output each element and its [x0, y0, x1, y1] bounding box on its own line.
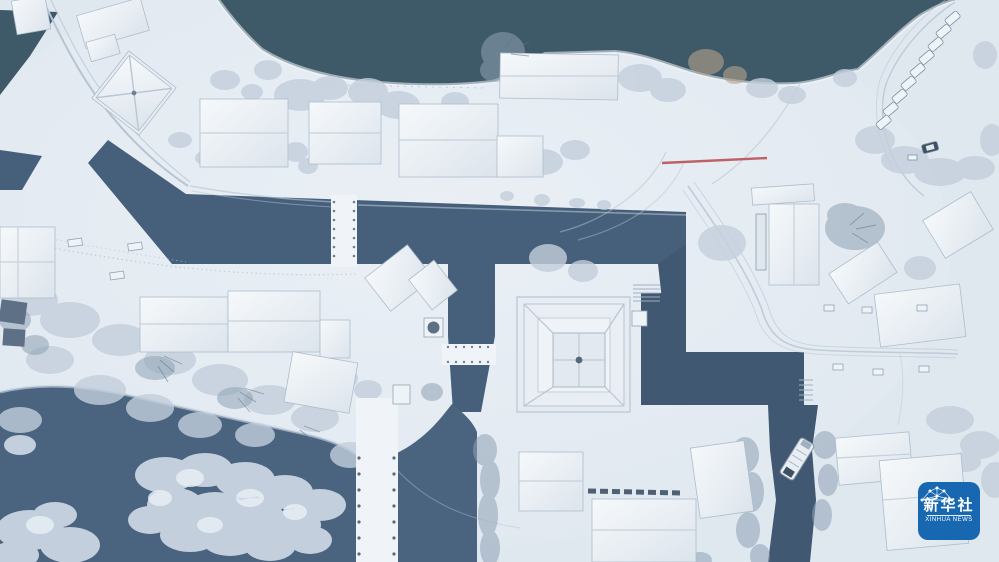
kiosk [393, 385, 410, 404]
bench [862, 307, 872, 313]
bench [917, 305, 927, 311]
bench [128, 242, 143, 251]
east-canal-basin [686, 352, 804, 405]
xinhua-watermark: 新华社 XINHUA NEWS [918, 482, 980, 540]
bench [824, 305, 834, 311]
bench [919, 366, 929, 372]
pagoda-roof [517, 297, 630, 412]
covered-corridor [756, 214, 766, 270]
network-globe-icon [918, 483, 956, 503]
building-roof [497, 136, 543, 177]
cart [908, 155, 917, 160]
south-canal [768, 405, 818, 562]
building-roof [690, 441, 753, 519]
watermark-divider [927, 515, 971, 516]
watermark-en-text: XINHUA NEWS [925, 517, 973, 524]
south-walkway [356, 398, 398, 562]
building-roof [320, 320, 350, 358]
kiosk [632, 311, 647, 326]
building-roof [874, 284, 966, 347]
bench [68, 238, 83, 247]
bench [833, 364, 843, 370]
east-canal-vertical [641, 293, 686, 405]
bench [110, 271, 125, 280]
snow-aerial-photo: 新华社 XINHUA NEWS [0, 0, 999, 562]
building-roof [284, 352, 358, 414]
bench [873, 369, 883, 375]
building-roof [11, 0, 50, 35]
scene-canvas [0, 0, 999, 562]
